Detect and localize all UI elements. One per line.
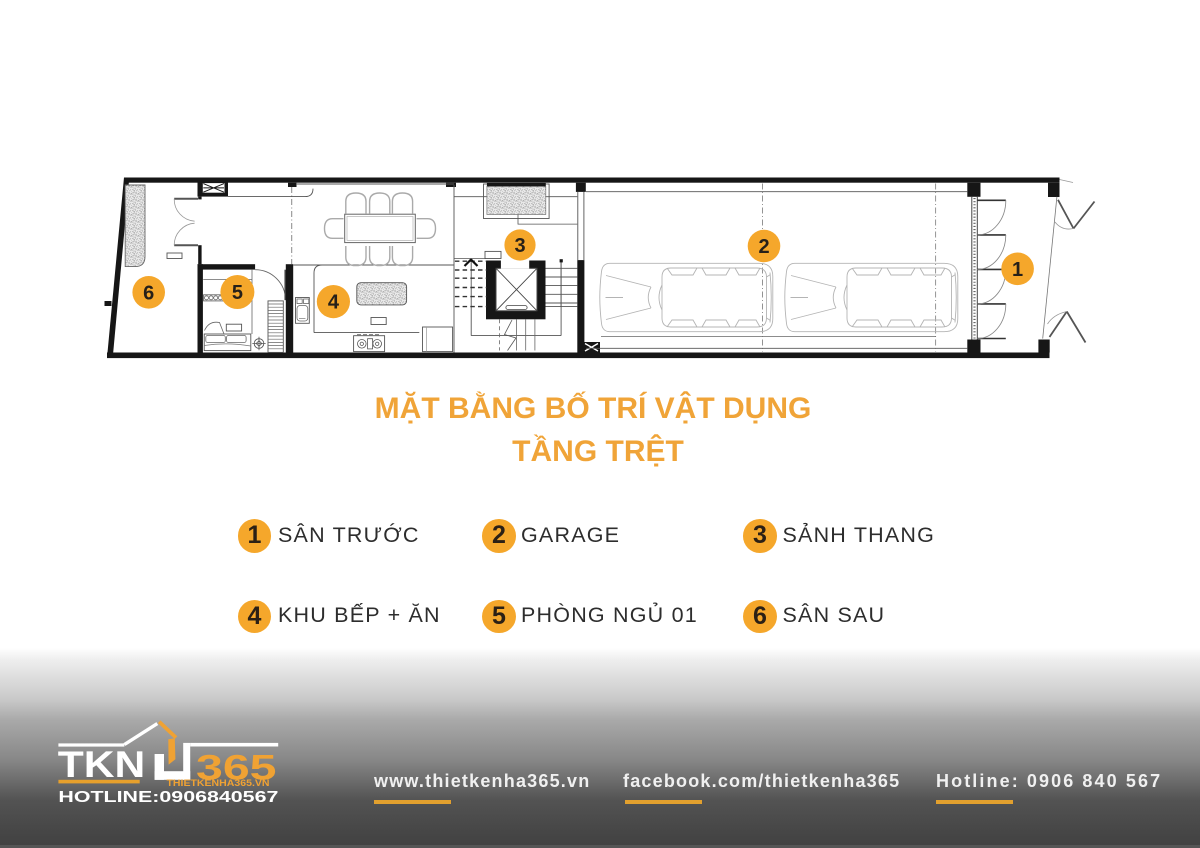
svg-text:4: 4 (328, 292, 340, 314)
svg-text:5: 5 (232, 282, 243, 304)
svg-text:3: 3 (514, 235, 525, 257)
svg-text:THIETKENHA365.VN: THIETKENHA365.VN (167, 778, 270, 789)
svg-text:1: 1 (1012, 259, 1023, 281)
svg-text:TKN: TKN (58, 743, 146, 785)
svg-text:2: 2 (758, 236, 769, 258)
svg-text:6: 6 (143, 282, 154, 304)
svg-text:HOTLINE:0906840567: HOTLINE:0906840567 (58, 789, 278, 806)
